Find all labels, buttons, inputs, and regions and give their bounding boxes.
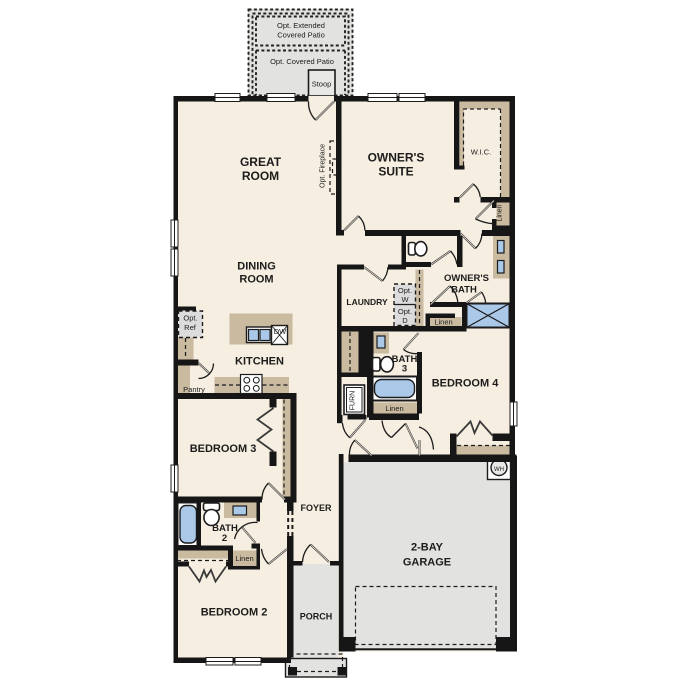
svg-text:BEDROOM 3: BEDROOM 3 (190, 443, 257, 455)
svg-text:ROOM: ROOM (239, 274, 273, 286)
svg-text:FOYER: FOYER (300, 503, 332, 513)
svg-text:GREAT: GREAT (240, 155, 282, 169)
svg-text:W: W (401, 295, 409, 304)
svg-text:Pantry: Pantry (183, 385, 205, 394)
svg-text:Opt. Fireplace: Opt. Fireplace (320, 144, 327, 188)
svg-text:OWNER'S: OWNER'S (368, 151, 425, 165)
svg-text:Stoop: Stoop (312, 80, 332, 89)
svg-text:D: D (402, 316, 408, 325)
svg-text:Linen: Linen (385, 404, 403, 413)
svg-text:PORCH: PORCH (300, 612, 333, 622)
svg-text:ROOM: ROOM (242, 169, 279, 183)
svg-text:Opt.: Opt. (398, 286, 412, 295)
svg-text:BATH: BATH (451, 285, 477, 296)
svg-text:Opt. Extended: Opt. Extended (277, 21, 325, 30)
svg-text:BEDROOM 2: BEDROOM 2 (201, 607, 268, 619)
svg-text:Linen: Linen (235, 554, 253, 563)
svg-text:Covered Patio: Covered Patio (277, 31, 325, 40)
svg-text:SUITE: SUITE (378, 165, 413, 179)
svg-text:3: 3 (402, 364, 407, 375)
svg-text:OWNER'S: OWNER'S (444, 273, 489, 284)
svg-text:LAUNDRY: LAUNDRY (346, 297, 388, 307)
svg-text:Opt.: Opt. (398, 307, 412, 316)
svg-text:2-BAY: 2-BAY (411, 542, 444, 554)
svg-text:Opt. Covered Patio: Opt. Covered Patio (270, 57, 334, 66)
svg-text:GARAGE: GARAGE (403, 557, 451, 569)
svg-text:BEDROOM 4: BEDROOM 4 (432, 378, 500, 390)
svg-text:FURN: FURN (350, 391, 357, 410)
svg-text:WH: WH (494, 467, 504, 473)
svg-text:Opt.: Opt. (183, 314, 197, 323)
svg-text:W.I.C.: W.I.C. (471, 148, 491, 157)
svg-text:Linen: Linen (497, 204, 504, 221)
svg-text:2: 2 (222, 533, 227, 544)
svg-text:Ref: Ref (184, 323, 197, 332)
svg-text:DINING: DINING (237, 261, 276, 273)
svg-text:KITCHEN: KITCHEN (235, 356, 284, 368)
svg-text:DW: DW (274, 327, 287, 336)
svg-text:Linen: Linen (434, 318, 452, 327)
